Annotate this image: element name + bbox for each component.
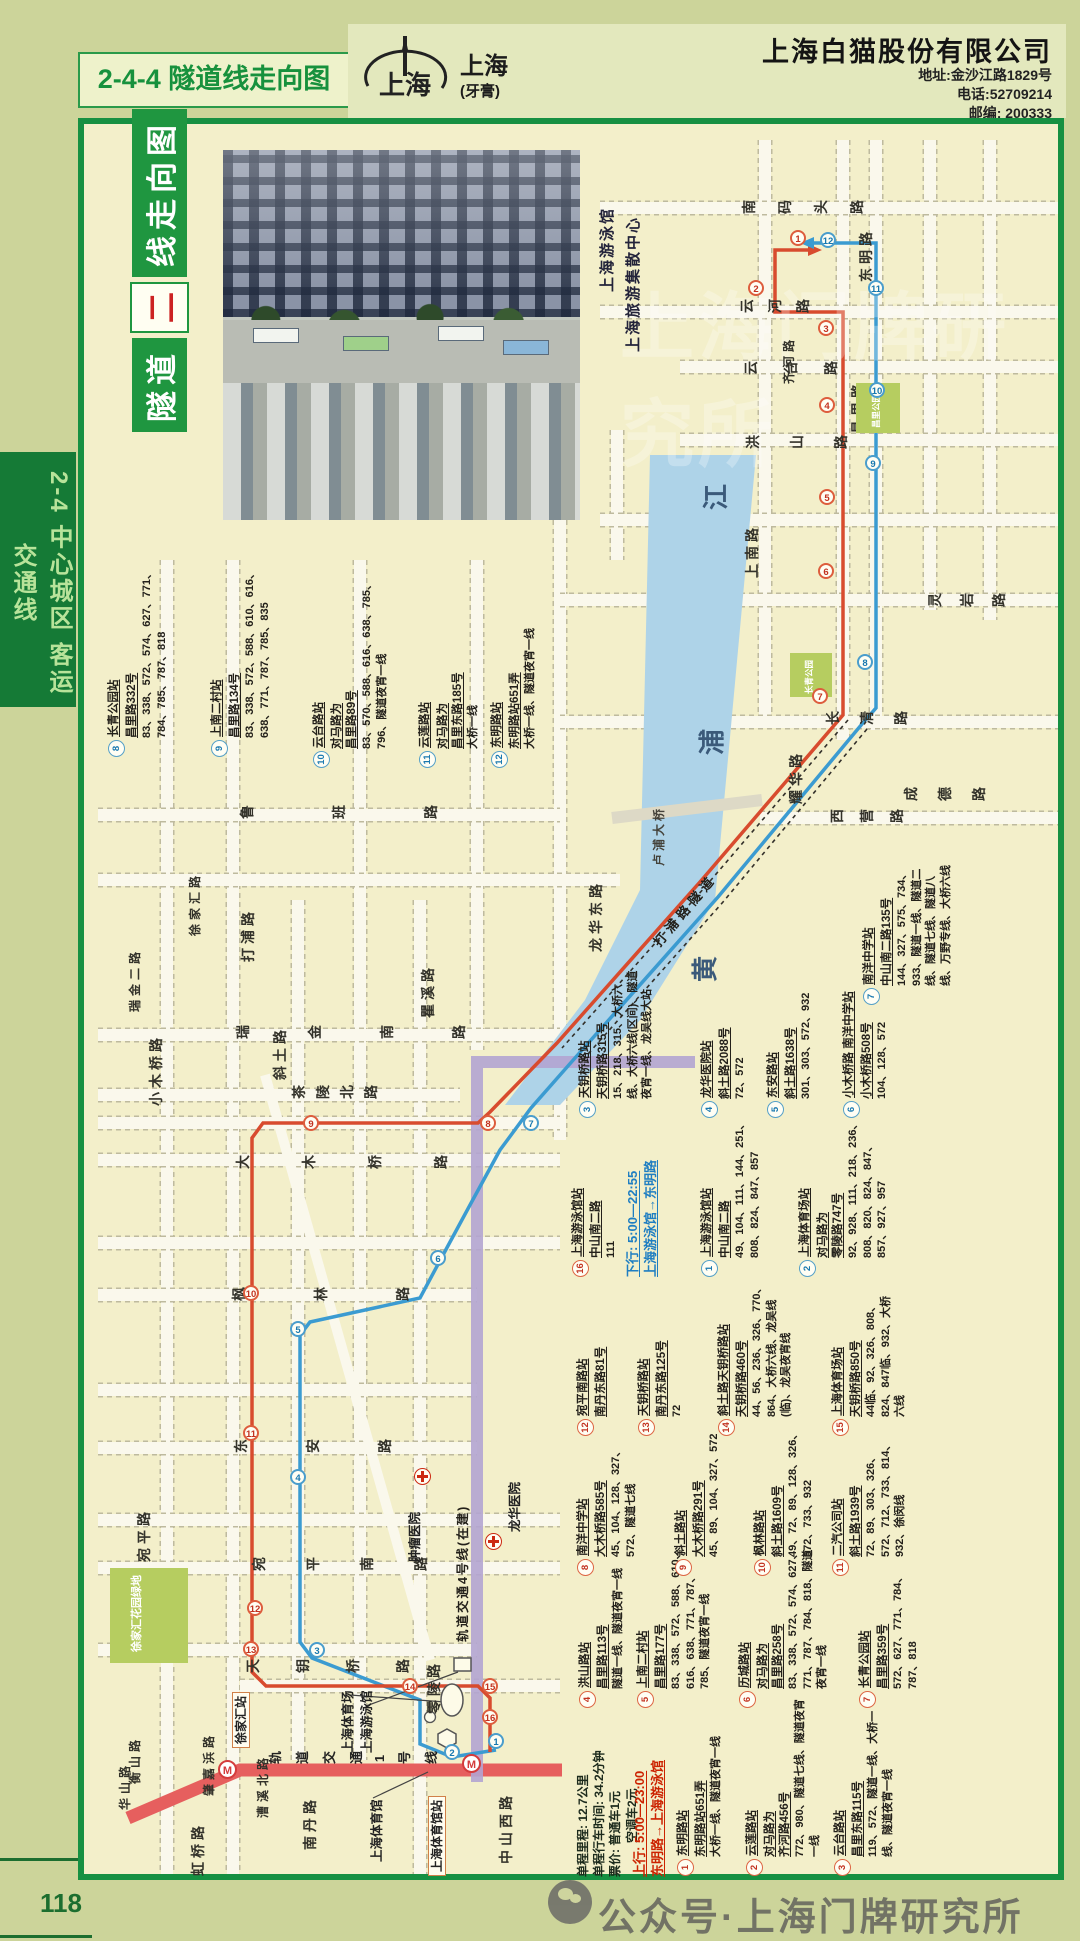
- boxed-label: 上海体育馆站: [428, 1796, 446, 1876]
- station-name: 东安路站: [767, 1052, 779, 1098]
- station-number-badge: 10: [313, 751, 330, 768]
- street-char: 路: [989, 593, 1009, 607]
- street-char: 山: [787, 435, 807, 449]
- street-char: 平: [303, 1557, 323, 1571]
- note-mileage: 单程里程: 12.7公里: [575, 1707, 591, 1877]
- station-routes: 15、218、315、大桥六线、大桥六线(区间)、隧道夜宵一线、龙吴线大站: [611, 968, 655, 1099]
- station-address: 昌里路89号: [345, 568, 360, 749]
- station-routes: 144、327、575、734、933、隧道一线、隧道二线、隧道七线、隧道八线、…: [895, 855, 953, 986]
- street-char: 路: [887, 809, 907, 823]
- station-name-line: 16上海游泳馆站: [571, 1112, 589, 1277]
- street-char: 台: [781, 361, 801, 375]
- station-detail-block: 2上海体育场站对马路为零陵路747号92、928、111、218、236、808…: [798, 1112, 890, 1277]
- street-char: 西: [827, 809, 847, 823]
- street-label: 云台路: [744, 358, 864, 378]
- station-detail-block: 1上海游泳馆站中山南二路49、104、111、144、251、808、824、8…: [700, 1112, 762, 1277]
- station-detail-block: 7南洋中学站中山南二路135号144、327、575、734、933、隧道一线、…: [862, 855, 953, 1005]
- station-detail-block: 3天钥桥路站天钥桥路315号15、218、315、大桥六线、大桥六线(区间)、隧…: [578, 968, 655, 1118]
- station-routes: 72、572: [733, 968, 748, 1099]
- up-hours: 上行: 5:00—23:00: [631, 1692, 649, 1877]
- up-route: 东明路→上海游泳馆: [649, 1692, 667, 1877]
- station-name: 斜土路天钥桥路站: [718, 1324, 730, 1416]
- street-char: 陵: [313, 1085, 333, 1099]
- street-char: 云: [737, 299, 757, 313]
- street-label: 南码头路: [742, 197, 886, 217]
- metro1-label-char: 交: [319, 1751, 338, 1764]
- street-label: 成德路: [904, 784, 1006, 804]
- station-marker: 8: [480, 1115, 496, 1131]
- station-name-line: 7南洋中学站: [862, 855, 880, 1005]
- street-label: 耀华路: [786, 750, 806, 804]
- station-marker: 8: [857, 654, 873, 670]
- station-name: 上海游泳馆站: [701, 1188, 713, 1257]
- station-detail-block: 10云台路站对马路为昌里路89号83、570、588、616、638、785、7…: [312, 568, 389, 768]
- station-detail-block: 11云莲路站对马路为昌里东路185号大桥一线: [418, 568, 481, 768]
- station-routes: 83、338、572、574、627、771、784、785、787、818: [140, 562, 169, 738]
- station-address: 齐河路456号: [778, 1696, 793, 1857]
- street-label: 灵岩路: [928, 590, 1024, 610]
- street-char: 岩: [957, 593, 977, 607]
- station-detail-block: 8长青公园站昌里路332号83、338、572、574、627、771、784、…: [107, 562, 169, 757]
- station-aerial-photo: [223, 150, 580, 520]
- street-label: 东明路: [856, 228, 876, 282]
- station-number-badge: 14: [718, 1419, 735, 1436]
- note-time: 单程行车时间: 34.2分钟: [591, 1707, 607, 1877]
- station-routes: 772、980、隧道七线、隧道夜宵一线: [793, 1696, 822, 1857]
- street-label: 鲁班路: [240, 802, 516, 822]
- station-number-badge: 12: [491, 751, 508, 768]
- station-number-badge: 9: [211, 740, 228, 757]
- station-name-line: 8南洋中学站: [576, 1426, 594, 1576]
- street-label: 斜土路: [270, 1026, 290, 1080]
- station-name: 东明路站: [677, 1810, 689, 1856]
- station-marker: 16: [482, 1709, 498, 1725]
- station-name-line: 5东安路站: [766, 968, 784, 1118]
- station-routes: 45、89、104、327、572: [707, 1426, 722, 1557]
- street-char: 路: [449, 1025, 469, 1039]
- station-routes: 45、104、128、327、572、隧道七线: [609, 1426, 638, 1557]
- station-routes: 111: [604, 1112, 619, 1258]
- street-label: 中山西路: [496, 1792, 516, 1864]
- station-name-line: 3天钥桥路站: [578, 968, 596, 1118]
- street-char: 灵: [925, 593, 945, 607]
- station-address: 大木桥路291号: [692, 1426, 707, 1557]
- station-number-badge: 9: [675, 1559, 692, 1576]
- photo-caption-1: 上海游泳馆: [596, 207, 617, 292]
- street-label: 上南路: [742, 524, 762, 578]
- station-detail-block: 10枫林路站斜土路1609号49、72、89、128、326、572、733、9…: [753, 1426, 815, 1576]
- station-detail-block: 16上海游泳馆站中山南二路111: [571, 1112, 619, 1277]
- station-routes: 83、338、572、588、610、616、638、771、787、785、8…: [243, 562, 272, 738]
- station-number-badge: 6: [843, 1101, 860, 1118]
- street-char: 头: [811, 200, 831, 214]
- street-char: 桥: [365, 1155, 385, 1169]
- station-routes: 83、570、588、616、638、785、796、隧道夜宵一线: [360, 568, 389, 749]
- station-name2: 对马路为: [816, 1112, 831, 1258]
- street-char: 南: [377, 1025, 397, 1039]
- station-address: 昌里路134号: [228, 562, 243, 738]
- station-name-line: 15上海体育场站: [831, 1286, 849, 1436]
- station-name: 长青公园站: [859, 1631, 871, 1689]
- station-number-badge: 6: [739, 1691, 756, 1708]
- station-number-badge: 4: [701, 1101, 718, 1118]
- station-marker: 3: [309, 1642, 325, 1658]
- station-marker: 11: [243, 1425, 259, 1441]
- station-name-line: 2云莲路站: [745, 1696, 763, 1876]
- station-address: 天钥桥路460号: [735, 1271, 750, 1417]
- station-address: 大木桥路585号: [594, 1426, 609, 1557]
- street-char: 瑞: [233, 1025, 253, 1039]
- metro1-label-char: 线: [421, 1751, 440, 1764]
- street-label: 龙华东路: [586, 880, 606, 952]
- poi-stadium-label: 上海体育场: [337, 1690, 356, 1753]
- street-char: 成: [901, 787, 921, 801]
- station-name: 斜土路站: [675, 1510, 687, 1556]
- map-title: 隧道 二 线走向图: [130, 109, 189, 432]
- street-char: 路: [821, 361, 841, 375]
- metro-logo-icon: M: [462, 1754, 481, 1773]
- station-address: 东明路站651弄: [508, 568, 523, 749]
- xujiahui-station-box: 徐家汇站: [232, 1692, 250, 1748]
- station-name: 龙华医院站: [701, 1041, 713, 1099]
- street-char: 大: [233, 1155, 253, 1169]
- station-name-line: 5上南二村站: [636, 1548, 654, 1708]
- station-routes: 44、56、236、326、770、864、大桥六线、龙吴线(临)、龙吴夜宵线: [750, 1271, 794, 1417]
- station-number-badge: 11: [832, 1559, 849, 1576]
- street-label: 东安路: [234, 1436, 450, 1456]
- station-address: 零陵路747号: [831, 1112, 846, 1258]
- street-label: 宛平路: [134, 1508, 154, 1562]
- station-name-line: 4龙华医院站: [700, 968, 718, 1118]
- station-detail-block: 9上南二村站昌里路134号83、338、572、588、610、616、638、…: [210, 562, 272, 757]
- station-detail-block: 8南洋中学站大木桥路585号45、104、128、327、572、隧道七线: [576, 1426, 638, 1576]
- station-detail-block: 3云台路站昌里东路115号119、572、隧道一线、大桥一线、隧道夜宵一线: [833, 1696, 895, 1876]
- station-number-badge: 15: [832, 1419, 849, 1436]
- station-marker: 4: [290, 1469, 306, 1485]
- station-number-badge: 8: [577, 1559, 594, 1576]
- station-name: 洪山路站: [579, 1642, 591, 1688]
- street-char: 码: [775, 200, 795, 214]
- station-number-badge: 16: [572, 1260, 589, 1277]
- station-marker: 2: [748, 280, 764, 296]
- station-marker: 5: [290, 1321, 306, 1337]
- street-char: 林: [311, 1287, 331, 1301]
- street-label: 徐家汇路: [186, 872, 203, 936]
- station-name: 天钥桥路站: [638, 1359, 650, 1417]
- station-name-line: 8长青公园站: [107, 562, 125, 757]
- street-char: 路: [393, 1287, 413, 1301]
- street-char: 路: [421, 805, 441, 819]
- station-routes: 44临、92、326、808、824、847临、932、大桥六线: [864, 1286, 908, 1417]
- note-fare1: 票价: 普通车1元: [607, 1707, 623, 1877]
- station-routes: 301、303、572、932: [799, 968, 814, 1099]
- street-char: 南: [357, 1557, 377, 1571]
- station-name: 东明路站: [491, 702, 503, 748]
- station-number-badge: 3: [834, 1859, 851, 1876]
- station-name2: 对马路为: [763, 1696, 778, 1857]
- station-marker: 7: [812, 688, 828, 704]
- street-char: 南: [739, 200, 759, 214]
- station-address: 南丹东路125号: [655, 1306, 670, 1417]
- station-routes: 大桥一线、隧道夜宵一线: [523, 568, 538, 749]
- station-detail-block: 11二汽公司站斜土路1939号72、89、303、326、572、712、733…: [831, 1426, 908, 1576]
- station-name-line: 9斜土路站: [674, 1426, 692, 1576]
- station-routes: 大桥一线、隧道夜宵一线: [709, 1696, 724, 1857]
- street-label: 枫林路: [232, 1284, 478, 1304]
- station-name-line: 2上海体育场站: [798, 1112, 816, 1277]
- street-char: 路: [847, 200, 867, 214]
- station-number-badge: 1: [677, 1859, 694, 1876]
- down-hours: 下行: 5:00—22:55: [624, 1107, 642, 1277]
- hospital-label: 肿瘤医院: [404, 1512, 423, 1562]
- street-label: 南丹路: [300, 1796, 320, 1850]
- street-char: 河: [765, 299, 785, 313]
- metro1-label-char: 号: [394, 1751, 413, 1764]
- river-name-char: 江: [696, 484, 733, 510]
- down-route: 上海游泳馆→东明路: [642, 1107, 660, 1277]
- street-char: 路: [969, 787, 989, 801]
- station-name: 上海体育场站: [799, 1188, 811, 1257]
- street-label: 小木桥路: [146, 1034, 166, 1106]
- station-address: 斜土路1609号: [771, 1426, 786, 1557]
- station-name: 枫林路站: [754, 1510, 766, 1556]
- station-number-badge: 2: [799, 1260, 816, 1277]
- street-char: 路: [361, 1085, 381, 1099]
- street-char: 路: [375, 1439, 395, 1453]
- street-label: 瞿溪路: [418, 964, 438, 1018]
- park-label: 长青公园: [803, 660, 815, 694]
- station-name-line: 11二汽公司站: [831, 1426, 849, 1576]
- station-number-badge: 11: [419, 751, 436, 768]
- station-marker: 1: [488, 1733, 504, 1749]
- map-title-part3: 线走向图: [132, 109, 187, 277]
- station-address: 昌里东路185号: [451, 568, 466, 749]
- metro1-label-char: 道: [292, 1751, 311, 1764]
- hospital-cross-icon: [414, 1468, 431, 1485]
- up-direction-note: 上行: 5:00—23:00 东明路→上海游泳馆: [631, 1692, 666, 1877]
- street-label: 西营路: [830, 806, 920, 826]
- street-label: 宛平南路: [252, 1554, 468, 1574]
- station-number-badge: 7: [863, 988, 880, 1005]
- station-marker: 12: [820, 232, 836, 248]
- street-char: 宛: [249, 1557, 269, 1571]
- station-address: 中山南二路: [589, 1112, 604, 1258]
- map-title-line-number: 二: [130, 282, 189, 333]
- street-char: 鲁: [237, 805, 257, 819]
- station-name-line: 1上海游泳馆站: [700, 1112, 718, 1277]
- station-detail-block: 1东明路站东明路站651弄大桥一线、隧道夜宵一线: [676, 1696, 724, 1876]
- station-marker: 10: [243, 1285, 259, 1301]
- street-char: 班: [329, 805, 349, 819]
- station-address: 南丹东路81号: [594, 1306, 609, 1417]
- street-char: 钥: [293, 1659, 313, 1673]
- station-name-line: 3云台路站: [833, 1696, 851, 1876]
- boxed-label: 徐家汇站: [232, 1692, 250, 1748]
- station-name-line: 12宛平南路站: [576, 1306, 594, 1436]
- station-name: 上海体育场站: [832, 1347, 844, 1416]
- station-marker: 1: [790, 230, 806, 246]
- station-name: 上南二村站: [211, 680, 223, 738]
- street-char: 云: [741, 361, 761, 375]
- station-number-badge: 5: [637, 1691, 654, 1708]
- street-char: 茶: [289, 1085, 309, 1099]
- station-name: 南洋中学站: [577, 1499, 589, 1557]
- station-name: 二汽公司站: [832, 1499, 844, 1557]
- station-marker: 10: [869, 382, 885, 398]
- street-label: 天钥桥路: [246, 1656, 446, 1676]
- stadium-metro-station-box: 上海体育馆站: [428, 1796, 446, 1876]
- metro1-label-char: 1: [372, 1755, 387, 1762]
- station-name-line: 14斜土路天钥桥路站: [717, 1271, 735, 1436]
- street-char: 路: [831, 435, 851, 449]
- street-char: 天: [243, 1659, 263, 1673]
- station-name: 上南二村站: [637, 1631, 649, 1689]
- station-detail-block: 9斜土路站大木桥路291号45、89、104、327、572: [674, 1426, 722, 1576]
- street-char: 木: [299, 1155, 319, 1169]
- station-marker: 6: [430, 1250, 446, 1266]
- poi-gymnasium-label: 上海体育馆: [366, 1799, 385, 1862]
- station-number-badge: 4: [579, 1691, 596, 1708]
- station-address: 斜土路2088号: [718, 968, 733, 1099]
- station-number-badge: 7: [859, 1691, 876, 1708]
- hospital-cross-icon: [485, 1533, 502, 1550]
- station-number-badge: 2: [746, 1859, 763, 1876]
- street-char: 清: [857, 711, 877, 725]
- street-char: 金: [305, 1025, 325, 1039]
- street-label: 茶陵北路: [292, 1082, 388, 1102]
- street-label: 肇嘉浜路: [200, 1732, 217, 1796]
- station-name: 南洋中学站: [863, 928, 875, 986]
- street-char: 洪: [743, 435, 763, 449]
- street-label: 云河路: [740, 296, 824, 316]
- station-name-line: 6小木桥路 南洋中学站: [842, 968, 860, 1118]
- street-char: 营: [857, 809, 877, 823]
- station-routes: 49、104、111、144、251、808、824、847、857: [733, 1112, 762, 1258]
- station-marker: 14: [402, 1678, 418, 1694]
- street-char: 路: [393, 1659, 413, 1673]
- station-number-badge: 13: [638, 1419, 655, 1436]
- station-routes: 72: [670, 1306, 685, 1417]
- photo-caption-2: 上海旅游集散中心: [622, 216, 643, 352]
- station-name: 上海游泳馆站: [572, 1188, 584, 1257]
- station-routes: 119、572、隧道一线、大桥一线、隧道夜宵一线: [866, 1696, 895, 1857]
- station-name-line: 13天钥桥路站: [637, 1306, 655, 1436]
- station-number-badge: 3: [579, 1101, 596, 1118]
- down-direction-note: 下行: 5:00—22:55 上海游泳馆→东明路: [624, 1107, 659, 1277]
- station-number-badge: 5: [767, 1101, 784, 1118]
- station-address: 天钥桥路850号: [849, 1286, 864, 1417]
- station-detail-block: 4龙华医院站斜土路2088号72、572: [700, 968, 748, 1118]
- street-char: 桥: [343, 1659, 363, 1673]
- street-char: 路: [891, 711, 911, 725]
- street-label: 零陵路: [424, 1660, 444, 1714]
- station-marker: 5: [819, 489, 835, 505]
- station-name-line: 9上南二村站: [210, 562, 228, 757]
- station-number-badge: 8: [108, 740, 125, 757]
- station-marker: 3: [818, 320, 834, 336]
- station-name-line: 10枫林路站: [753, 1426, 771, 1576]
- station-marker: 15: [482, 1678, 498, 1694]
- street-char: 德: [935, 787, 955, 801]
- station-detail-block: 12东明路站东明路站651弄大桥一线、隧道夜宵一线: [490, 568, 538, 768]
- street-label: 长清路: [826, 708, 928, 728]
- station-name: 云莲路站: [746, 1810, 758, 1856]
- station-detail-block: 2云莲路站对马路为齐河路456号772、980、隧道七线、隧道夜宵一线: [745, 1696, 822, 1876]
- station-name-line: 11云莲路站: [418, 568, 436, 768]
- station-address: 中山南二路: [718, 1112, 733, 1258]
- station-marker: 7: [523, 1115, 539, 1131]
- station-routes: 49、72、89、128、326、572、733、932: [786, 1426, 815, 1557]
- station-name-line: 1东明路站: [676, 1696, 694, 1876]
- station-name: 云台路站: [834, 1810, 846, 1856]
- station-marker: 13: [243, 1641, 259, 1657]
- poi-natatorium-label: 上海游泳馆: [356, 1690, 375, 1753]
- station-address: 昌里东路115号: [851, 1696, 866, 1857]
- street-char: 安: [303, 1439, 323, 1453]
- metro-logo-icon: M: [218, 1760, 237, 1779]
- street-char: 长: [823, 711, 843, 725]
- station-name: 小木桥路 南洋中学站: [843, 991, 855, 1098]
- street-label: 打浦路: [238, 908, 258, 962]
- station-marker: 9: [865, 455, 881, 471]
- street-label: 虹桥路: [188, 1822, 208, 1876]
- stadium-icon: [441, 1684, 463, 1716]
- station-address: 昌里路177号: [654, 1548, 669, 1689]
- station-detail-block: 5东安路站斜土路1638号301、303、572、932: [766, 968, 814, 1118]
- station-address: 斜土路1638号: [784, 968, 799, 1099]
- station-address: 斜土路1939号: [849, 1426, 864, 1557]
- station-name: 云莲路站: [419, 702, 431, 748]
- photo-haze: [223, 150, 580, 520]
- station-name: 天钥桥路站: [579, 1041, 591, 1099]
- station-number-badge: 12: [577, 1419, 594, 1436]
- street-char: 路: [431, 1155, 451, 1169]
- river-name-char: 浦: [692, 729, 729, 755]
- station-name2: 对马路为: [330, 568, 345, 749]
- station-address: 中山南二路135号: [880, 855, 895, 986]
- station-name2: 对马路为: [436, 568, 451, 749]
- station-routes: 大桥一线: [466, 568, 481, 749]
- station-marker: 4: [819, 397, 835, 413]
- station-marker: 9: [303, 1115, 319, 1131]
- bridge-label: 卢浦大桥: [650, 806, 667, 866]
- station-name-line: 10云台路站: [312, 568, 330, 768]
- street-label: 漕溪北路: [254, 1754, 271, 1818]
- station-name: 历城路站: [739, 1642, 751, 1688]
- station-routes: 92、928、111、218、236、808、820、824、847、857、9…: [846, 1112, 890, 1258]
- street-label: 衡山路: [126, 1736, 143, 1784]
- hospital-label: 龙华医院: [504, 1482, 523, 1532]
- station-address: 东明路站651弄: [694, 1696, 709, 1857]
- station-number-badge: 10: [754, 1559, 771, 1576]
- station-detail-block: 13天钥桥路站南丹东路125号72: [637, 1306, 685, 1436]
- station-name: 云台路站: [313, 702, 325, 748]
- station-address: 天钥桥路315号: [596, 968, 611, 1099]
- park-label: 徐家汇花园绿地: [128, 1575, 144, 1652]
- station-detail-block: 12宛平南路站南丹东路81号: [576, 1306, 609, 1436]
- station-name-line: 12东明路站: [490, 568, 508, 768]
- station-marker: 12: [247, 1600, 263, 1616]
- station-detail-block: 15上海体育场站天钥桥路850号44临、92、326、808、824、847临、…: [831, 1286, 908, 1436]
- street-label: 大木桥路: [236, 1152, 500, 1172]
- street-char: 路: [793, 299, 813, 313]
- station-address: 昌里路332号: [125, 562, 140, 738]
- street-char: 北: [337, 1085, 357, 1099]
- station-name: 宛平南路站: [577, 1359, 589, 1417]
- map-title-part1: 隧道: [132, 338, 187, 432]
- natatorium-icon: [454, 1658, 471, 1671]
- street-label: 洪山路: [746, 432, 878, 452]
